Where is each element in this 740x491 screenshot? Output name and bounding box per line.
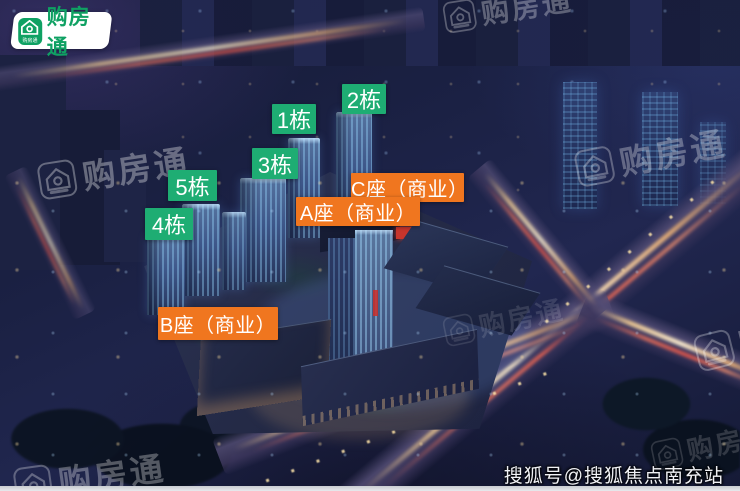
watermark-house-icon (36, 158, 78, 200)
gouftong-logo: 购房通 购房通 (10, 12, 113, 49)
watermark-house-icon (573, 144, 616, 187)
watermark-house-icon (441, 312, 476, 347)
tower-4 (147, 235, 185, 315)
label-building-4: 4栋 (145, 208, 193, 240)
tower-a-red-banner (373, 290, 378, 316)
watermark-house-icon (692, 327, 737, 372)
label-building-1: 1栋 (272, 104, 316, 134)
label-building-2: 2栋 (342, 84, 386, 114)
logo-brand-text: 购房通 (47, 1, 104, 61)
aerial-night-rendering: 购房通 购房通 购房通 购房通 购房通 购房通 购房通 1栋 2栋 3栋 5栋 … (0, 0, 740, 491)
label-building-3: 3栋 (252, 148, 298, 179)
tower-rear (222, 212, 246, 290)
label-building-5: 5栋 (168, 170, 217, 201)
logo-icon-mini-text: 购房通 (18, 38, 42, 43)
label-block-b: B座（商业） (158, 307, 278, 340)
gouftong-logo-inner: 购房通 购房通 (18, 1, 104, 61)
gouftong-house-icon: 购房通 (18, 17, 42, 44)
label-block-a: A座（商业） (296, 197, 420, 226)
tower-3 (240, 178, 286, 282)
watermark-house-icon (442, 0, 478, 34)
sohu-credit-text: 搜狐号@搜狐焦点南充站 (504, 461, 724, 488)
bottom-strip (0, 486, 740, 491)
